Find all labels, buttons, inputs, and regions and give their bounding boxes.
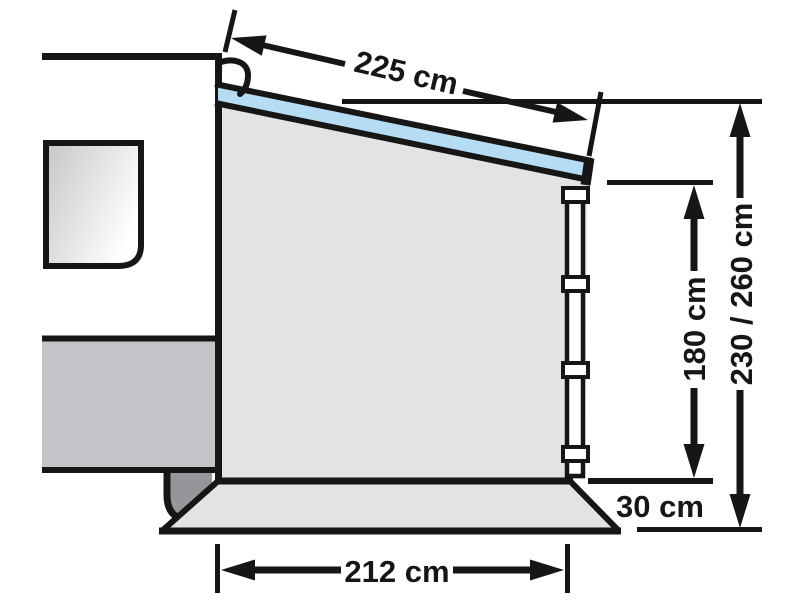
pole-shaft — [567, 192, 583, 476]
arrowhead-right-icon — [553, 102, 589, 122]
ground-skirt-fill — [162, 478, 618, 531]
dim-label-base-width: 212 cm — [344, 554, 449, 589]
caravan — [42, 143, 215, 470]
arrowhead-down-icon — [684, 444, 705, 478]
pole-clip — [563, 363, 588, 377]
dim-label-ground-clearance: 30 cm — [616, 489, 704, 524]
pole-clip — [563, 277, 588, 291]
dim-rear-height: 180 cm — [588, 183, 713, 482]
dim-label-overall-height: 230 / 260 cm — [724, 203, 759, 386]
caravan-skirt — [42, 339, 215, 469]
dim-label-roof-depth: 225 cm — [351, 44, 461, 102]
awning-dimension-diagram: 225 cm 180 cm 230 / 260 cm 30 cm — [0, 0, 800, 600]
dim-label-rear-height: 180 cm — [677, 276, 712, 381]
arrowhead-left-icon — [221, 560, 255, 581]
witness-tick — [225, 10, 235, 52]
arrowhead-right-icon — [530, 560, 564, 581]
arrowhead-down-icon — [730, 494, 751, 528]
awning-roof-end-cap — [586, 158, 590, 185]
dim-line — [258, 44, 345, 64]
diagram-canvas: 225 cm 180 cm 230 / 260 cm 30 cm — [0, 0, 800, 600]
caravan-window — [46, 143, 141, 266]
arrowhead-up-icon — [730, 103, 751, 137]
pole-clip — [563, 188, 588, 202]
pole-clip — [563, 447, 588, 461]
arrowhead-up-icon — [684, 185, 705, 219]
awning-ground-skirt — [159, 478, 621, 531]
dim-base-width: 212 cm — [218, 544, 568, 593]
